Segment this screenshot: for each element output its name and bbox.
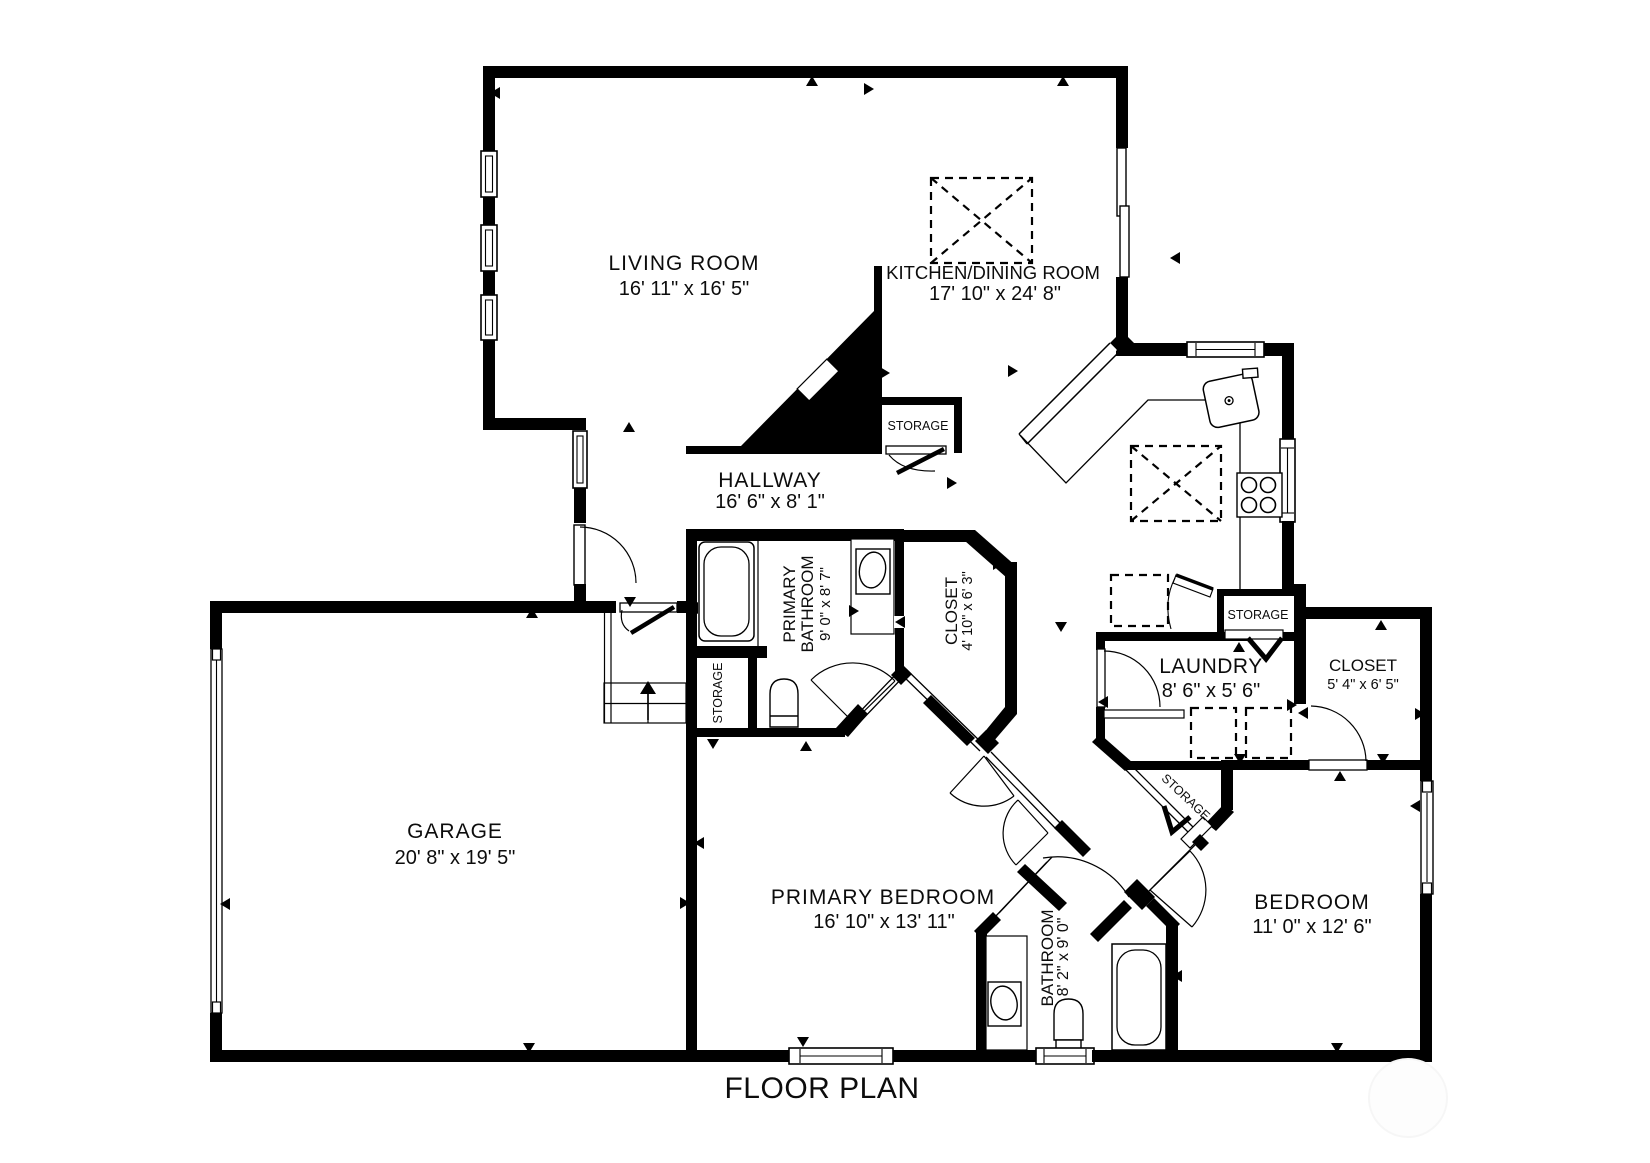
svg-text:PRIMARY: PRIMARY <box>780 565 799 642</box>
svg-text:LIVING ROOM: LIVING ROOM <box>608 252 759 275</box>
svg-text:5' 4" x 6' 5": 5' 4" x 6' 5" <box>1327 677 1398 693</box>
svg-text:LAUNDRY: LAUNDRY <box>1159 655 1262 678</box>
svg-text:16' 11" x 16' 5": 16' 11" x 16' 5" <box>619 278 749 300</box>
svg-text:STORAGE: STORAGE <box>711 663 725 724</box>
svg-text:16' 10" x 13' 11": 16' 10" x 13' 11" <box>813 911 955 933</box>
svg-text:20' 8" x 19' 5": 20' 8" x 19' 5" <box>395 847 516 869</box>
svg-text:STORAGE: STORAGE <box>888 419 949 433</box>
svg-text:PRIMARY BEDROOM: PRIMARY BEDROOM <box>771 886 995 909</box>
svg-text:STORAGE: STORAGE <box>1228 608 1289 622</box>
svg-text:4' 10" x 6' 3": 4' 10" x 6' 3" <box>960 571 976 651</box>
svg-text:FLOOR PLAN: FLOOR PLAN <box>724 1072 919 1105</box>
svg-text:GARAGE: GARAGE <box>407 820 503 843</box>
svg-text:11' 0" x 12' 6": 11' 0" x 12' 6" <box>1252 916 1371 938</box>
svg-text:BATHROOM: BATHROOM <box>798 556 817 653</box>
svg-text:KITCHEN/DINING ROOM: KITCHEN/DINING ROOM <box>886 262 1100 283</box>
svg-text:CLOSET: CLOSET <box>1329 656 1397 675</box>
svg-text:17' 10" x 24' 8": 17' 10" x 24' 8" <box>929 283 1061 305</box>
svg-text:CLOSET: CLOSET <box>942 577 961 645</box>
svg-text:BEDROOM: BEDROOM <box>1254 891 1370 914</box>
svg-text:9' 0" x 8' 7": 9' 0" x 8' 7" <box>817 567 834 641</box>
svg-text:8' 6" x 5' 6": 8' 6" x 5' 6" <box>1162 680 1261 702</box>
svg-text:8' 2" x 9' 0": 8' 2" x 9' 0" <box>1055 918 1072 997</box>
svg-text:HALLWAY: HALLWAY <box>718 469 821 492</box>
svg-text:16' 6" x 8' 1": 16' 6" x 8' 1" <box>715 491 825 513</box>
